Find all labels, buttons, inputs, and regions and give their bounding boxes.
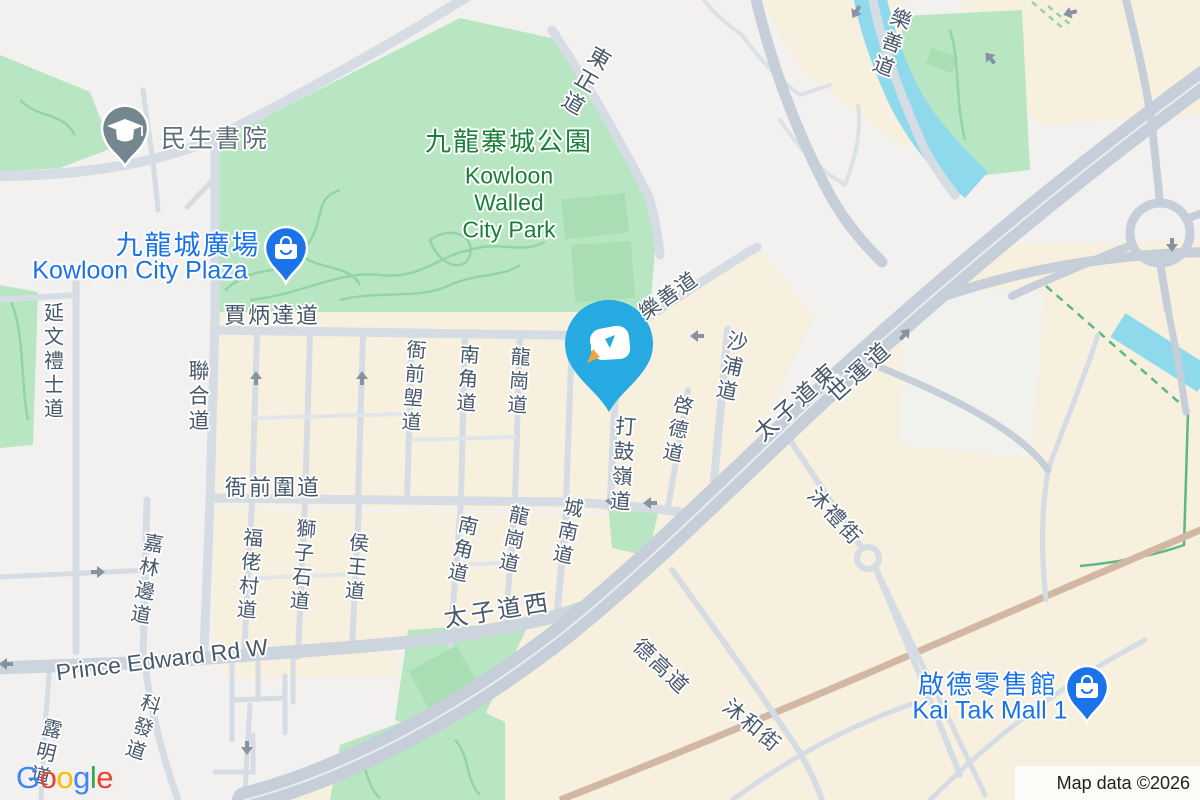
google-logo[interactable]: Google	[16, 760, 113, 796]
road-label: 延文禮士道	[38, 302, 67, 422]
google-logo-letter: e	[96, 760, 113, 795]
poi-label-school[interactable]: 民生書院	[161, 119, 269, 155]
road-label: 聯合道	[182, 360, 212, 435]
map-canvas[interactable]: 東正道 樂善道 樂善道 賈炳達道 衙前圍道 延文禮士道 聯合道 嘉林邊道 衙前塱…	[0, 0, 1200, 800]
google-logo-letter: o	[40, 760, 57, 795]
road-label: 賈炳達道	[224, 298, 320, 330]
google-logo-letter: G	[16, 760, 40, 795]
poi-label-kowloon-city-plaza-en[interactable]: Kowloon City Plaza	[32, 257, 247, 286]
map-attribution: Map data ©2026	[1057, 773, 1190, 794]
park-label-en-line2: Walled	[474, 190, 543, 217]
park-label-en-line3: City Park	[462, 217, 555, 244]
road-label: 龍崗道	[500, 345, 534, 419]
park-label-en-line1: Kowloon	[465, 163, 553, 190]
road-label: 南角道	[449, 343, 483, 417]
google-logo-letter: g	[73, 760, 90, 795]
google-logo-letter: o	[56, 760, 73, 795]
park-label-zh: 九龍寨城公園	[425, 122, 593, 159]
road-label: 衙前圍道	[225, 470, 321, 502]
poi-label-kai-tak-mall-en[interactable]: Kai Tak Mall 1	[912, 697, 1067, 726]
